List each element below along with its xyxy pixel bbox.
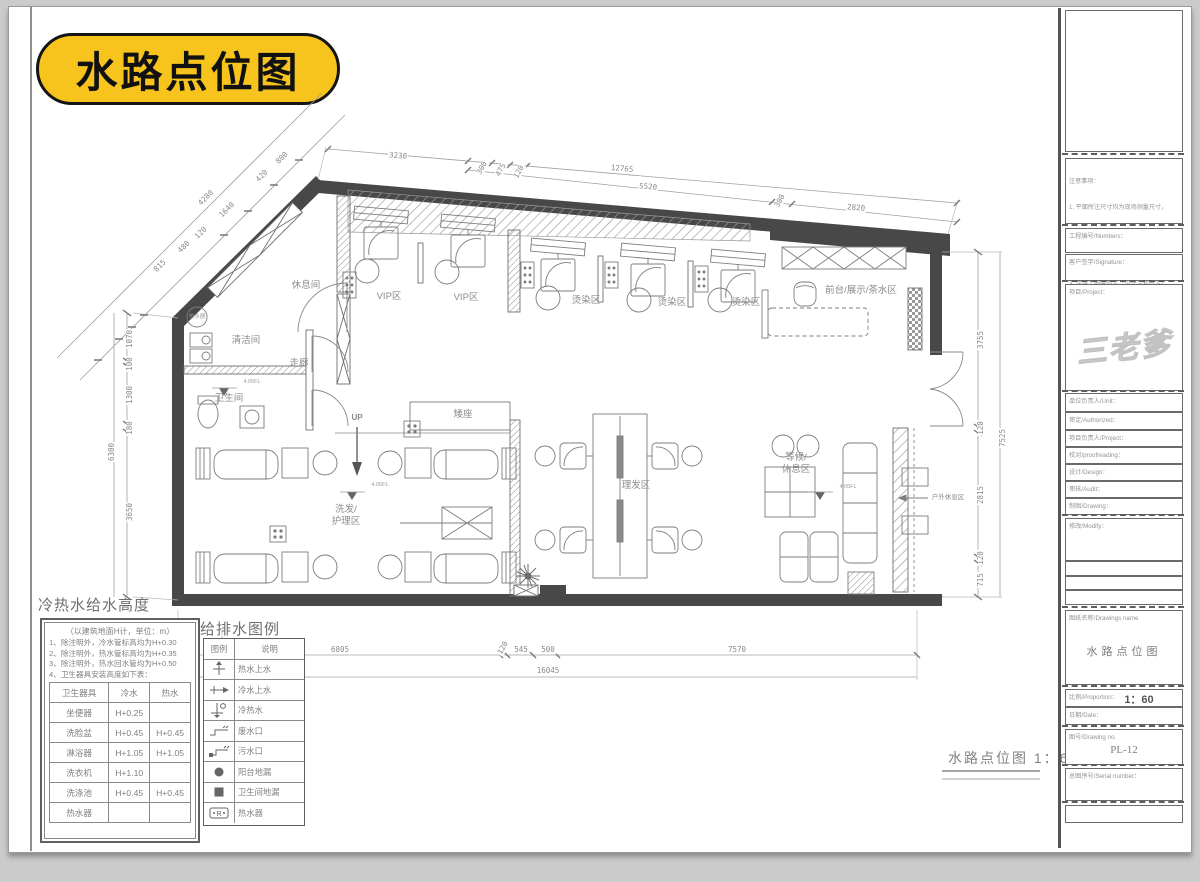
dashed-separator — [1062, 685, 1184, 687]
dim-top-3230: 3230 — [388, 151, 409, 161]
drawing-title-badge: 水路点位图 — [36, 33, 340, 105]
dim-right-3755: 3755 — [977, 330, 985, 350]
svg-text:R: R — [216, 811, 221, 818]
titleblock-empty-row — [1065, 590, 1183, 605]
dim-left-1070: 1070 — [126, 329, 134, 349]
titleblock-field-authorized: 审定/Authorized： — [1065, 412, 1183, 430]
table-row: 洗脸盆H+0.45H+0.45 — [50, 723, 191, 743]
water-heater-legend-icon: R — [204, 803, 235, 823]
room-label-vip-2: VIP区 — [454, 292, 479, 304]
titleblock-empty-top — [1065, 10, 1183, 152]
dashed-separator — [1062, 725, 1184, 727]
dim-bottom-545: 545 — [513, 646, 529, 654]
cold-water-supply-icon — [204, 680, 235, 700]
room-label-rest-room: 休息间 — [292, 280, 321, 292]
titleblock-field-unit: 单位负责人/Unit： — [1065, 393, 1183, 412]
sheet-margin-line — [30, 6, 32, 851]
dim-left-100: 100 — [126, 356, 134, 372]
dashed-separator — [1062, 280, 1184, 282]
titleblock-border-line — [1058, 8, 1061, 848]
legend-row: 废水口 — [204, 721, 304, 742]
legend-header-row: 图例 说明 — [204, 639, 304, 660]
dashed-separator — [1062, 514, 1184, 516]
fixture-height-table: 卫生器具 冷水 热水 坐便器H+0.25 洗脸盆H+0.45H+0.45 淋浴器… — [49, 682, 191, 823]
legend-row: 冷热水 — [204, 701, 304, 722]
titleblock-empty-row — [1065, 561, 1183, 576]
legend-title: 给排水图例 — [200, 618, 280, 639]
legend-row: 阳台地漏 — [204, 762, 304, 783]
dim-left-6300: 6300 — [108, 442, 116, 462]
dim-top-5520: 5520 — [638, 182, 659, 192]
titleblock-serial: 总图序号/Serial number： — [1065, 768, 1183, 801]
dashed-separator — [1062, 153, 1184, 155]
sewage-outlet-icon — [204, 742, 235, 762]
dim-right-120a: 120 — [977, 420, 985, 436]
titleblock-field-design: 设计/Design： — [1065, 464, 1183, 481]
balcony-drain-icon — [204, 762, 235, 782]
room-label-perm-3: 烫染区 — [732, 297, 761, 309]
elevation-text-1: 4.05FL — [371, 479, 388, 491]
toilet-drain-icon — [204, 783, 235, 803]
room-label-wash-care: 洗发/ 护理区 — [332, 504, 361, 528]
elevation-text-3: 4.05FL — [243, 376, 260, 388]
dashed-separator — [1062, 764, 1184, 766]
table-row: 洗涤池H+0.45H+0.45 — [50, 783, 191, 803]
dim-left-180: 180 — [126, 420, 134, 436]
dim-right-715: 715 — [977, 572, 985, 588]
hot-cold-water-icon — [204, 701, 235, 721]
room-label-outdoor: 户外休息区 — [932, 492, 965, 504]
proportion-value: 1：60 — [1096, 691, 1182, 707]
titleblock-field-drawing: 制图/Drawing： — [1065, 498, 1183, 515]
height-table-subtitle: （以建筑地面H计，单位：m） — [49, 626, 191, 637]
title-block: 注意事项： 1. 平面所注尺寸均为现场测量尺寸， 如有误差，按实际调整。 2. … — [1062, 8, 1186, 848]
hot-water-supply-icon — [204, 660, 235, 680]
titleblock-field-project-leader: 项目负责人/Project： — [1065, 430, 1183, 447]
titleblock-field-modify: 修改/Modify： — [1065, 518, 1183, 561]
dashed-separator — [1062, 390, 1184, 392]
legend-row: 卫生间地漏 — [204, 783, 304, 804]
table-header-row: 卫生器具 冷水 热水 — [50, 683, 191, 703]
dim-right-120b: 120 — [977, 550, 985, 566]
height-table-title: 冷热水给水高度 — [38, 594, 150, 615]
room-label-perm-1: 烫染区 — [572, 295, 601, 307]
titleblock-proportion: 比例/Proportion： 1：60 — [1065, 689, 1183, 707]
titleblock-date: 日期/Date： — [1065, 707, 1183, 725]
room-label-haircut: 理发区 — [622, 480, 651, 492]
dim-left-1300: 1300 — [126, 385, 134, 405]
elevation-text-2: 4.05FL — [839, 481, 856, 493]
titleblock-notes: 注意事项： 1. 平面所注尺寸均为现场测量尺寸， 如有误差，按实际调整。 2. … — [1065, 158, 1183, 224]
height-table-note-1: 1、除注明外，冷水管标高均为H+0.30 — [49, 638, 191, 649]
height-table-note-3: 3、除注明外，热水回水管均为H+0.50 — [49, 659, 191, 670]
titleblock-empty-bottom — [1065, 805, 1183, 823]
dim-bottom-7570: 7570 — [727, 646, 747, 654]
drawing-name-value: 水路点位图 — [1066, 643, 1182, 659]
titleblock-field-project: 项目/Project： 三老爹 — [1065, 284, 1183, 391]
studio-watermark: 三老爹 — [1064, 317, 1184, 373]
titleblock-field-signature: 客户签字/Signature： — [1065, 254, 1183, 281]
plumbing-legend: 图例 说明 热水上水 冷水上水 冷热水 废水口 污水口 阳台地漏 卫生间地漏 — [203, 638, 305, 826]
legend-row: 热水上水 — [204, 660, 304, 681]
table-row: 洗衣机H+1.10 — [50, 763, 191, 783]
cad-sheet-page: { "page": { "badge": "水路点位图" }, "plan": … — [0, 0, 1200, 882]
dim-bottom-6805: 6805 — [330, 646, 350, 654]
room-label-perm-2: 烫染区 — [658, 297, 687, 309]
dashed-separator — [1062, 224, 1184, 226]
table-row: 淋浴器H+1.05H+1.05 — [50, 743, 191, 763]
titleblock-empty-row — [1065, 576, 1183, 590]
height-table: （以建筑地面H计，单位：m） 1、除注明外，冷水管标高均为H+0.30 2、除注… — [40, 618, 200, 843]
waste-water-outlet-icon — [204, 721, 235, 741]
dim-right-7525: 7525 — [999, 428, 1007, 448]
table-row: 热水器 — [50, 803, 191, 823]
titleblock-drawing-name: 图纸名称/Drawings name 水路点位图 — [1065, 610, 1183, 685]
titleblock-field-audit: 审核/Audit： — [1065, 481, 1183, 498]
titleblock-field-numbers: 工程编号/Numbers： — [1065, 228, 1183, 253]
drawing-no-value: PL-12 — [1066, 744, 1182, 756]
stair-up-label: UP — [351, 412, 362, 424]
dim-left-3650: 3650 — [126, 502, 134, 522]
room-label-vip-1: VIP区 — [377, 291, 402, 303]
room-label-cleaning: 清洁间 — [232, 335, 261, 347]
dashed-separator — [1062, 606, 1184, 608]
water-heater-label: 热水器 — [189, 311, 206, 323]
dim-bottom-500: 500 — [540, 646, 556, 654]
room-label-front-desk: 前台/展示/茶水区 — [825, 285, 897, 297]
room-label-low-seat: 矮座 — [453, 409, 472, 421]
room-label-waiting: 等候/ 休息区 — [782, 452, 811, 476]
table-row: 坐便器H+0.25 — [50, 703, 191, 723]
height-table-note-4: 4、卫生器具安装高度如下表： — [49, 670, 191, 681]
dashed-separator — [1062, 801, 1184, 803]
legend-row: 冷水上水 — [204, 680, 304, 701]
dim-right-2815: 2815 — [977, 485, 985, 505]
room-label-toilet: 卫生间 — [215, 393, 244, 405]
height-table-note-2: 2、除注明外，热水管标高均为H+0.35 — [49, 649, 191, 660]
legend-row: 污水口 — [204, 742, 304, 763]
legend-row: R 热水器 — [204, 803, 304, 823]
titleblock-field-proofreading: 校对/proofreading： — [1065, 447, 1183, 464]
room-label-corridor: 走廊 — [289, 358, 308, 370]
dim-top-2820: 2820 — [846, 203, 867, 213]
titleblock-drawing-no: 图号/Drawing no. PL-12 — [1065, 729, 1183, 765]
dim-bottom-16045: 16045 — [536, 667, 561, 675]
